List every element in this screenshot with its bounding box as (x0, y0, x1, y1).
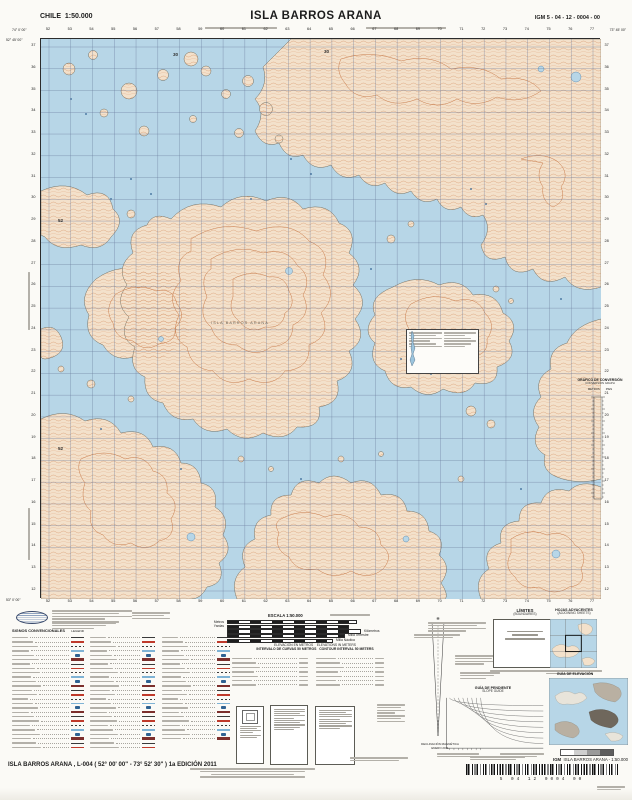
legend-row (162, 676, 230, 679)
grid-label: 26 (605, 283, 609, 287)
grid-label: 12 (605, 588, 609, 592)
elevation-leader-row (232, 657, 308, 660)
print-note-block (132, 612, 170, 620)
legend-row (12, 693, 84, 696)
grid-label: 18 (31, 458, 35, 462)
legend-row (162, 645, 230, 648)
grid-label: 25 (31, 305, 35, 309)
legend-row (90, 733, 155, 736)
map-canvas (41, 39, 601, 599)
grid-label: 37 (605, 44, 609, 48)
grid-label: 61 (242, 600, 246, 604)
declination-note-2 (414, 634, 460, 640)
grid-label: 33 (31, 131, 35, 135)
legend-row (90, 640, 155, 643)
inmap-grid-number: 30 (324, 50, 329, 55)
legend-row (90, 671, 155, 674)
legend-row (162, 658, 230, 661)
grid-label: 72 (481, 28, 485, 32)
legend-row (90, 684, 155, 687)
legend-row (12, 649, 84, 652)
legend-row (162, 715, 230, 718)
legend-row (12, 715, 84, 718)
grid-label: 64 (307, 28, 311, 32)
grid-label: 29 (605, 218, 609, 222)
grid-label: 73 (503, 600, 507, 604)
scale-bars: MetrosYardasKilómetrosMilla TerrestreMil… (182, 620, 412, 643)
grid-label: 53 (68, 28, 72, 32)
legend-row (12, 667, 84, 670)
inmap-grid-number: 30 (173, 53, 178, 58)
legend-row (12, 684, 84, 687)
elevation-leaders-2 (316, 657, 384, 688)
legend-row (162, 671, 230, 674)
legend-row (162, 693, 230, 696)
grid-label: 56 (133, 600, 137, 604)
elevation-leader-row (232, 675, 308, 678)
elevation-leader-row (316, 683, 384, 686)
legend-title: SIGNOS CONVENCIONALES (12, 628, 65, 633)
legend-row (12, 733, 84, 736)
grid-label: 67 (372, 600, 376, 604)
legend-row (90, 680, 155, 683)
elevation-leader-row (316, 675, 384, 678)
map-sheet: CHILE 1:50.000 ISLA BARROS ARANA IGM 5 -… (0, 0, 632, 800)
grid-label: 35 (31, 88, 35, 92)
grid-label: 75 (546, 28, 550, 32)
grid-label: 62 (263, 600, 267, 604)
inset-right-text (444, 332, 477, 371)
legend-row (162, 684, 230, 687)
declination-note-1 (428, 622, 486, 633)
inmap-grid-number: 52 (58, 219, 63, 224)
copyright-paragraph (190, 768, 315, 779)
elevation-leader-row (316, 657, 384, 660)
elevation-leader-row (316, 666, 384, 669)
legend-row (12, 640, 84, 643)
legend-column-1 (12, 636, 84, 750)
grid-label: 69 (416, 600, 420, 604)
legend-row (90, 715, 155, 718)
igm-abbr: IGM (553, 757, 561, 762)
igm-logo (16, 611, 48, 624)
legend-row (12, 706, 84, 709)
grid-label: 53 (68, 600, 72, 604)
note-box-2 (270, 705, 308, 765)
grid-label: 28 (31, 240, 35, 244)
legend-row (90, 741, 155, 744)
legend-row (12, 658, 84, 661)
grid-label: 36 (605, 66, 609, 70)
grid-label: 76 (568, 600, 572, 604)
legend-row (162, 724, 230, 727)
legend-row (12, 697, 84, 700)
grid-label: 65 (329, 600, 333, 604)
location-inset (406, 329, 479, 374)
grid-label: 71 (459, 600, 463, 604)
grid-label: 27 (31, 262, 35, 266)
elevation-guide-title: GUÍA DE ELEVACIÓN (540, 672, 610, 676)
legend-row (162, 680, 230, 683)
grid-label: 62 (263, 28, 267, 32)
grid-label: 59 (198, 600, 202, 604)
grid-label: 52 (46, 28, 50, 32)
grid-label: 58 (176, 28, 180, 32)
footnote-a (350, 757, 408, 763)
elevation-leader-row (316, 670, 384, 673)
legend-row (162, 697, 230, 700)
footnote-b (470, 756, 525, 762)
legend-row (90, 746, 155, 749)
grid-label: 54 (89, 600, 93, 604)
legend-column-2 (90, 636, 155, 750)
grid-label: 68 (394, 28, 398, 32)
grid-label: 27 (605, 262, 609, 266)
grid-label: 14 (605, 545, 609, 549)
print-code-note (597, 786, 625, 792)
grid-label: 30 (605, 196, 609, 200)
legend-row (12, 737, 84, 740)
grid-label: 55 (111, 28, 115, 32)
grid-label: 15 (605, 523, 609, 527)
grid-label: 67 (372, 28, 376, 32)
legend-row (162, 667, 230, 670)
inmap-grid-number: 52 (58, 447, 63, 452)
grid-label: 65 (329, 28, 333, 32)
corner-diagram-icon (242, 710, 258, 724)
grid-label: 13 (605, 566, 609, 570)
legend-row (162, 654, 230, 657)
elevation-leader-row (232, 666, 308, 669)
left-margin-note-2 (28, 508, 31, 560)
legend-row (12, 711, 84, 714)
grid-label: 71 (459, 28, 463, 32)
elevation-leader-row (232, 670, 308, 673)
grid-label: 70 (438, 600, 442, 604)
grid-label: 22 (605, 370, 609, 374)
grid-label: 32 (605, 153, 609, 157)
legend-row (162, 711, 230, 714)
legend-column-3 (162, 636, 230, 741)
legend-row (162, 733, 230, 736)
grid-label: 60 (220, 600, 224, 604)
note-box-3 (315, 706, 355, 765)
limites-box (493, 619, 557, 668)
footer-sheet-title: ISLA BARROS ARANA , L-004 ( 52° 00' 00" … (8, 762, 217, 768)
grid-label: 24 (605, 327, 609, 331)
grid-label: 21 (31, 392, 35, 396)
grid-label: 73 (503, 28, 507, 32)
grid-label: 14 (31, 545, 35, 549)
grid-label: 15 (31, 523, 35, 527)
elevation-leader-row (316, 661, 384, 664)
legend-row (90, 649, 155, 652)
legend-row (90, 697, 155, 700)
hojas-subtitle: (ADJOINING SHEETS) (546, 612, 602, 616)
grid-label: 77 (590, 600, 594, 604)
legend-row (162, 706, 230, 709)
barcode-digits: 5 04 12 0004 00 (492, 777, 592, 782)
grid-label: 37 (31, 44, 35, 48)
grid-label: 12 (31, 588, 35, 592)
grid-label: 23 (605, 349, 609, 353)
slope-guide-curves (437, 694, 549, 752)
grid-label: 60 (220, 28, 224, 32)
grid-label: 68 (394, 600, 398, 604)
grid-label: 57 (155, 600, 159, 604)
legend-row (90, 667, 155, 670)
legend-row (12, 719, 84, 722)
grid-label: 19 (31, 436, 35, 440)
legend-row (162, 719, 230, 722)
legend-row (12, 662, 84, 665)
contour-interval-es: INTERVALO DE CURVAS 50 METROS (256, 647, 316, 651)
legend-row (12, 741, 84, 744)
grid-label: 77 (590, 28, 594, 32)
legend-row (90, 693, 155, 696)
grid-label: 17 (31, 479, 35, 483)
grid-label: 69 (416, 28, 420, 32)
legend-row (12, 645, 84, 648)
grid-label: 13 (31, 566, 35, 570)
elevation-guide-thumbnail (549, 678, 628, 745)
grid-label: 16 (31, 501, 35, 505)
legend-row (12, 724, 84, 727)
legend-row (162, 737, 230, 740)
legend-row (90, 645, 155, 648)
grid-label: 58 (176, 600, 180, 604)
legend-row (90, 654, 155, 657)
grid-label: 55 (111, 600, 115, 604)
legend-row (12, 636, 84, 639)
legend-row (90, 689, 155, 692)
grid-label: 31 (31, 175, 35, 179)
legend-row (90, 719, 155, 722)
grid-label: 70 (438, 28, 442, 32)
product-label: ISLA BARROS ARANA - 1:50.000 (564, 757, 629, 762)
legend-row (162, 662, 230, 665)
legend-row (90, 737, 155, 740)
note-right-block (377, 704, 405, 724)
conversion-graph: GRÁFICO DE CONVERSIÓN CONVERSION GRAPH M… (572, 378, 628, 508)
contour-interval-en: CONTOUR INTERVAL 50 METERS (319, 647, 373, 651)
legend-row (90, 702, 155, 705)
grid-label: 32 (31, 153, 35, 157)
convergence-note-2 (460, 672, 500, 680)
grid-label: 54 (89, 28, 93, 32)
sheet-code: IGM 5 - 04 - 12 - 0004 - 00 (535, 15, 600, 21)
elevation-leader-row (232, 679, 308, 682)
grid-label: 31 (605, 175, 609, 179)
legend-row (90, 706, 155, 709)
grid-label: 26 (31, 283, 35, 287)
adjoining-sheets-thumbnail (550, 619, 597, 668)
grid-label: 35 (605, 88, 609, 92)
legend-row (90, 728, 155, 731)
corner-top-left-lat: 52° 45' 00" (6, 39, 22, 42)
grid-label: 30 (31, 196, 35, 200)
corner-top-right-lon: 73° 45' 00" (610, 29, 626, 32)
grid-label: 24 (31, 327, 35, 331)
grid-label: 64 (307, 600, 311, 604)
grid-label: 61 (242, 28, 246, 32)
grid-label: 57 (155, 28, 159, 32)
note-box-corner-diagram (236, 706, 264, 764)
grid-label: 72 (481, 600, 485, 604)
legend-row (162, 689, 230, 692)
legend-row (90, 676, 155, 679)
chile-outline-icon (407, 330, 420, 369)
elevation-leader-row (232, 661, 308, 664)
legend-row (162, 649, 230, 652)
scale-note (330, 614, 370, 617)
grid-label: 34 (31, 109, 35, 113)
grid-label: 29 (31, 218, 35, 222)
corner-bottom-left-lat: 53° 0' 00" (6, 599, 21, 602)
grid-label: 22 (31, 370, 35, 374)
legend-row (90, 711, 155, 714)
grid-label: 56 (133, 28, 137, 32)
elevation-leader-row (232, 683, 308, 686)
legend-row (162, 728, 230, 731)
legend-row (90, 658, 155, 661)
legend-row (90, 724, 155, 727)
legend-row (12, 676, 84, 679)
legend-row (12, 728, 84, 731)
grid-label: 20 (31, 414, 35, 418)
legend-row (162, 702, 230, 705)
conversion-graph-subtitle: CONVERSION GRAPH (572, 382, 628, 385)
grid-label: 33 (605, 131, 609, 135)
grid-label: 23 (31, 349, 35, 353)
legend-row (12, 746, 84, 749)
grid-label: 36 (31, 66, 35, 70)
grid-label: 75 (546, 600, 550, 604)
corner-top-left-lon: 74° 0' 00" (12, 29, 27, 32)
elevation-tint-bar (560, 749, 614, 756)
top-microprint-right (366, 27, 446, 30)
grid-label: 74 (525, 600, 529, 604)
grid-label: 63 (285, 28, 289, 32)
grid-label: 63 (285, 600, 289, 604)
legend-row (12, 702, 84, 705)
legend-row (12, 689, 84, 692)
legend-row (90, 662, 155, 665)
scale-title: ESCALA 1:50.000 (268, 613, 303, 618)
legend-title-en: LEGEND (71, 629, 84, 633)
island-name-label: ISLA BARROS ARANA (197, 322, 283, 326)
conversion-ruler (572, 391, 628, 503)
legend-row (12, 654, 84, 657)
elevation-leaders-1 (232, 657, 308, 688)
grid-label: 66 (351, 28, 355, 32)
grid-label: 66 (351, 600, 355, 604)
left-margin-note (28, 272, 31, 330)
grid-label: 34 (605, 109, 609, 113)
legend-row (90, 636, 155, 639)
elevation-leader-row (316, 679, 384, 682)
grid-label: 74 (525, 28, 529, 32)
barcode (466, 764, 618, 775)
grid-label: 52 (46, 600, 50, 604)
grid-label: 28 (605, 240, 609, 244)
grid-label: 25 (605, 305, 609, 309)
legend-row (12, 680, 84, 683)
legend-row (12, 671, 84, 674)
topographic-map[interactable]: ISLA BARROS ARANA 30305252 (40, 38, 600, 598)
grid-label: 59 (198, 28, 202, 32)
grid-label: 76 (568, 28, 572, 32)
